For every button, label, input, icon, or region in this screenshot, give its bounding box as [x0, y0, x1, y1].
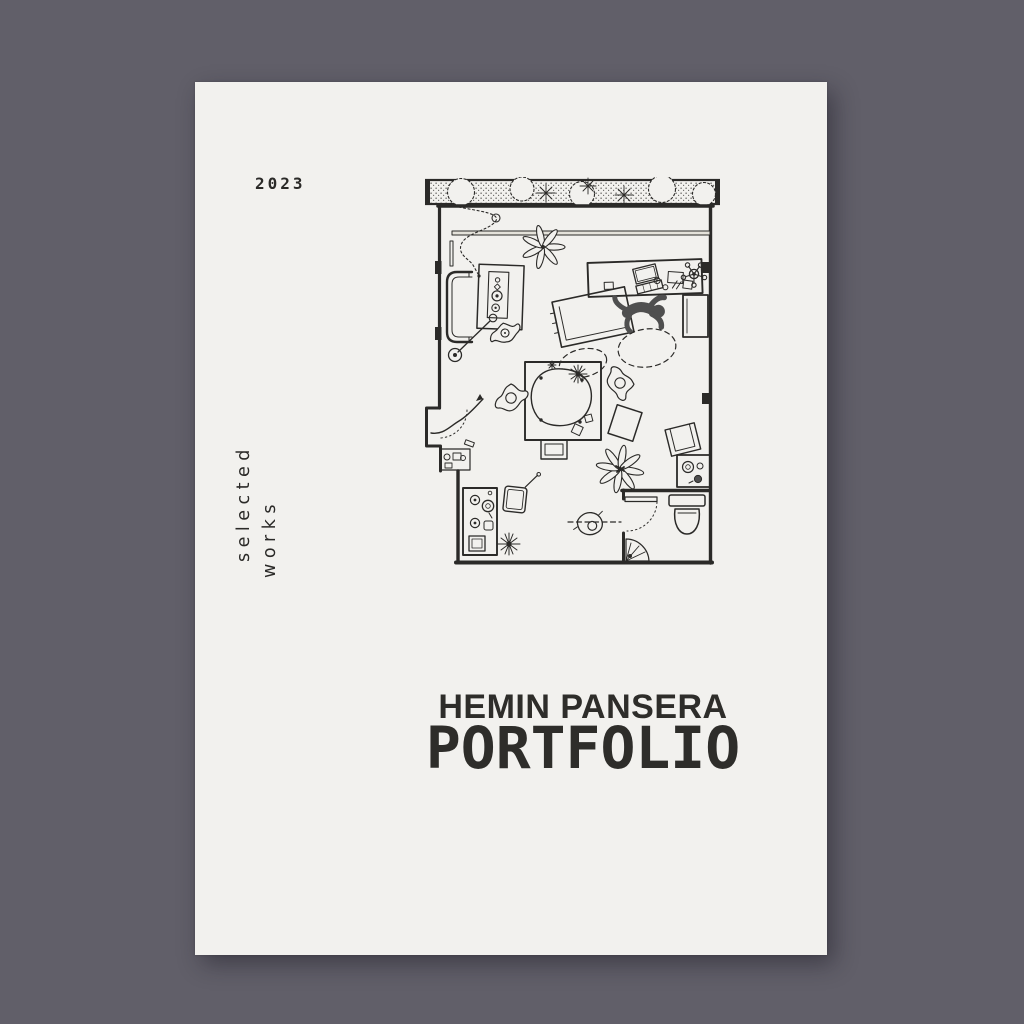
corner-shower [626, 539, 649, 561]
portfolio-title: PORTFOLIO [420, 721, 746, 776]
bathroom [622, 490, 710, 563]
year-label: 2023 [255, 174, 306, 193]
person-figure [615, 286, 671, 336]
stool [608, 405, 642, 442]
floorplan-illustration [425, 177, 720, 572]
side-text-works: works [259, 499, 281, 578]
bathroom-vanity [677, 455, 710, 487]
garden-strip [425, 177, 720, 207]
kitchen-chair [503, 469, 541, 514]
kitchen-counter [463, 488, 497, 555]
houseplant-icon [596, 445, 644, 493]
side-text-selected: selected [233, 444, 255, 562]
toilet [669, 495, 705, 534]
dining-table [525, 361, 601, 459]
sofa [447, 272, 472, 342]
chair-splat-left [495, 384, 528, 411]
poster-page: 2023 selected works [195, 82, 827, 955]
small-plant-icon [498, 533, 520, 555]
cat-figure [488, 320, 522, 344]
canvas-background: { "window": { "background_color": "#615f… [0, 0, 1024, 1024]
chair-splat-right [606, 366, 636, 401]
coffee-table [477, 264, 524, 330]
desk-return [683, 295, 708, 337]
floor-lamp [449, 314, 497, 361]
armchair [665, 423, 701, 456]
title-block: HEMIN PANSERA PORTFOLIO [420, 689, 746, 776]
yoga-figure [572, 511, 606, 537]
